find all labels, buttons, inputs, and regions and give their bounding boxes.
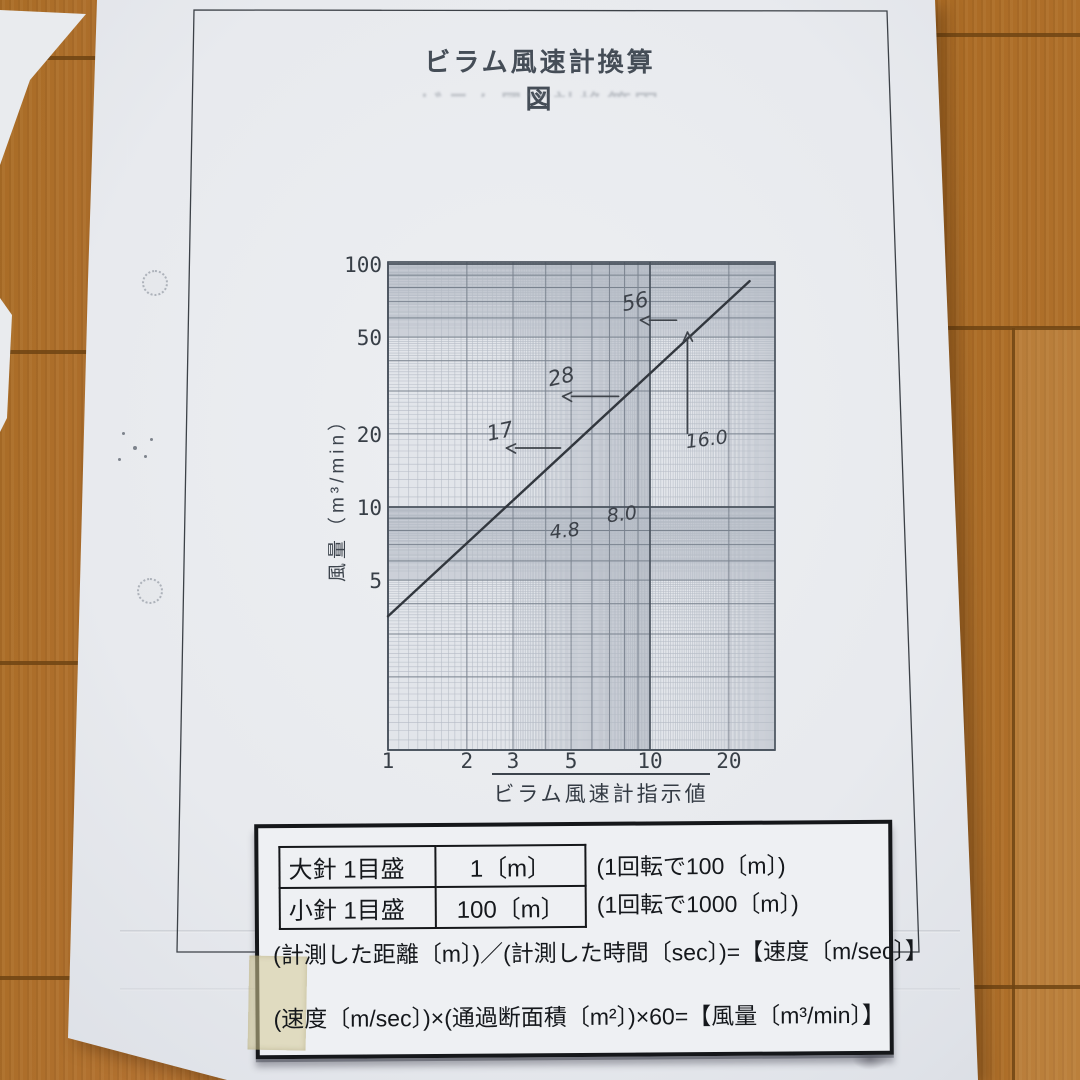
svg-text:50: 50 — [357, 326, 382, 350]
table-cell-label: 小針 1目盛 — [280, 887, 436, 929]
handwritten-annotation: 174.8 — [485, 417, 582, 544]
table-cell-label: 大針 1目盛 — [279, 846, 435, 888]
svg-text:5: 5 — [565, 749, 578, 773]
toner-speck — [144, 455, 147, 458]
table-cell-value: 1〔m〕 — [435, 845, 585, 887]
airflow-formula: (速度〔m/sec〕)×(通過断面積〔m²〕)×60=【風量〔m³/min〕】 — [273, 996, 885, 1034]
y-axis-title: 風量（m³/min） — [323, 330, 350, 660]
svg-text:5: 5 — [369, 569, 382, 593]
page-border — [177, 10, 919, 952]
svg-text:100: 100 — [344, 253, 382, 277]
conversion-line — [388, 281, 750, 616]
svg-text:16.0: 16.0 — [684, 426, 729, 453]
table-side-note: (1回転で100〔m〕) — [596, 847, 785, 882]
svg-text:1: 1 — [382, 749, 395, 773]
page-title: ビラム風速計換算図 — [410, 42, 670, 116]
handwritten-annotation: 288.0 — [546, 362, 639, 527]
document-page-wrap: ビラム風速計換算図 ビラム風速計換算図 風量（m³/min） ビラム風速計指示値… — [0, 0, 1080, 1080]
table-cell-value: 100〔m〕 — [436, 886, 586, 928]
toner-speck — [118, 458, 121, 461]
toner-speck — [150, 438, 153, 441]
hole-punch-mark — [142, 270, 168, 296]
svg-text:20: 20 — [716, 749, 741, 773]
svg-text:20: 20 — [357, 423, 382, 447]
svg-text:17: 17 — [485, 417, 517, 446]
needle-scale-table: 大針 1目盛 1〔m〕 小針 1目盛 100〔m〕 — [278, 844, 587, 930]
svg-text:8.0: 8.0 — [606, 502, 639, 528]
x-axis-title: ビラム風速計指示値 — [492, 773, 710, 808]
svg-text:3: 3 — [507, 749, 520, 773]
page-title-ghost: ビラム風速計換算図 — [410, 84, 670, 97]
toner-speck — [122, 432, 125, 435]
svg-text:10: 10 — [357, 496, 382, 520]
photo-of-document: ビラム風速計換算図 ビラム風速計換算図 風量（m³/min） ビラム風速計指示値… — [0, 0, 1080, 1080]
table-row: 大針 1目盛 1〔m〕 — [279, 845, 585, 888]
document-page: ビラム風速計換算図 ビラム風速計換算図 風量（m³/min） ビラム風速計指示値… — [0, 0, 1080, 1080]
svg-text:2: 2 — [461, 749, 474, 773]
taped-note: 大針 1目盛 1〔m〕 小針 1目盛 100〔m〕 (1回転で100〔m〕) (… — [254, 820, 894, 1059]
svg-text:28: 28 — [546, 362, 577, 391]
table-side-note: (1回転で1000〔m〕) — [597, 884, 799, 919]
toner-speck — [133, 446, 137, 450]
svg-text:56: 56 — [620, 287, 651, 316]
svg-text:10: 10 — [637, 749, 662, 773]
svg-text:4.8: 4.8 — [548, 518, 581, 544]
speed-formula: (計測した距離〔m〕)／(計測した時間〔sec〕)=【速度〔m/sec〕】 — [273, 932, 928, 971]
table-row: 小針 1目盛 100〔m〕 — [280, 886, 586, 929]
hole-punch-mark — [137, 578, 163, 604]
handwritten-annotation: 5616.0 — [620, 287, 730, 453]
log-grid — [388, 262, 775, 750]
